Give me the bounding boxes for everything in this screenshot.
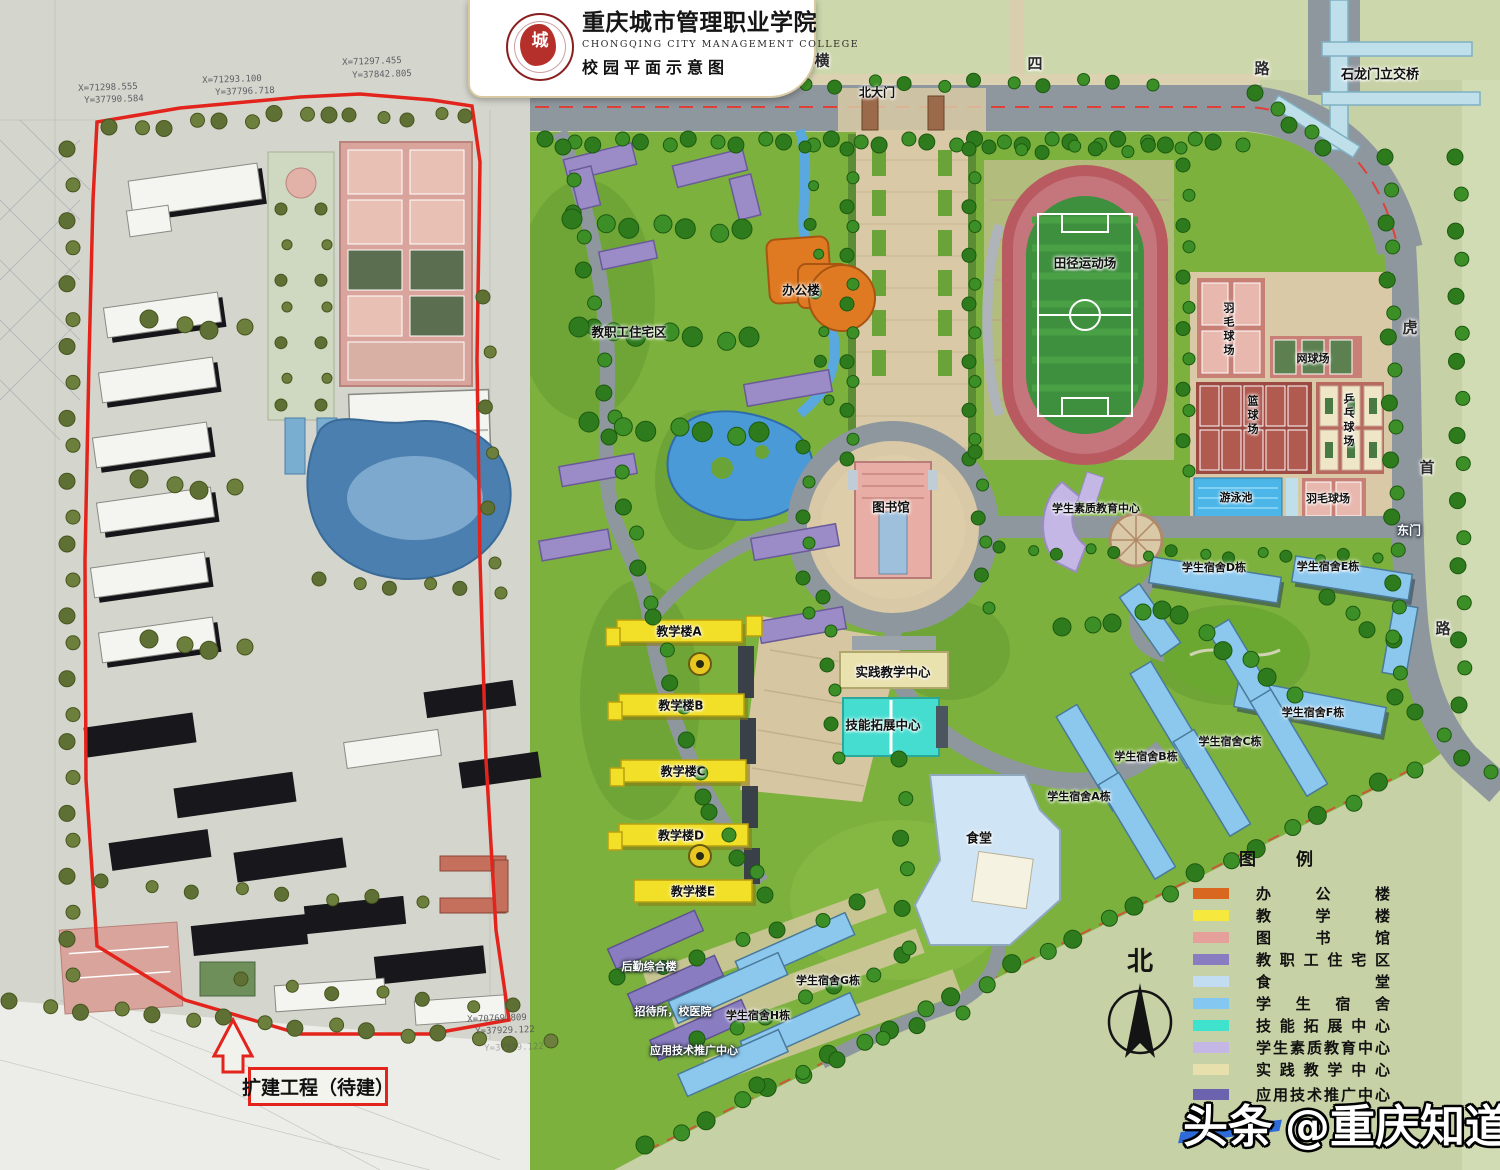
road-hengsi-char1: 横 (814, 50, 829, 71)
coord-3x: X=71297.455 (342, 56, 402, 68)
dorm-f-label: 学生宿舍F栋 (1282, 704, 1345, 720)
logistics-label: 后勤综合楼 (622, 958, 677, 974)
legend-swatch (1193, 998, 1229, 1009)
seal-character: 城 (508, 26, 572, 51)
legend-swatch (1193, 1020, 1229, 1031)
legend-swatch (1193, 976, 1229, 987)
watermark: 头条 @重庆知道 (1183, 1090, 1500, 1155)
coord-2y: Y=37796.718 (215, 86, 275, 98)
quality-center-label: 学生素质教育中心 (1052, 500, 1140, 516)
coord-1y: Y=37790.584 (84, 94, 144, 106)
basketball-label: 篮球场 (1244, 395, 1260, 437)
dorm-e-label: 学生宿舍E栋 (1297, 558, 1360, 574)
compass: 北 (1102, 941, 1178, 978)
dorm-g-label: 学生宿舍G栋 (796, 972, 860, 988)
dorm-b-label: 学生宿舍B栋 (1114, 748, 1177, 764)
road-east-char1: 虎 (1402, 317, 1417, 338)
blueprint-courts (340, 142, 472, 386)
dining-label: 食堂 (966, 828, 992, 847)
teach-b-label: 教学楼B (658, 697, 703, 714)
coord-2x: X=71293.100 (202, 74, 262, 86)
road-east-char2: 首 (1419, 457, 1434, 478)
legend-swatch (1193, 1064, 1229, 1075)
title-card: 城 重庆城市管理职业学院 CHONGQING CITY MANAGEMENT C… (468, 0, 816, 98)
badminton-bottom-label: 羽毛球场 (1306, 490, 1350, 506)
college-name-cn: 重庆城市管理职业学院 (582, 10, 808, 36)
library-label: 图书馆 (872, 497, 910, 516)
bridge-label: 石龙门立交桥 (1341, 64, 1419, 83)
legend-item: 办公楼 (1193, 882, 1390, 904)
dorm-c-label: 学生宿舍C栋 (1198, 733, 1261, 749)
dorm-h-label: 学生宿舍H栋 (726, 1007, 790, 1023)
legend-item: 教职工住宅区 (1193, 948, 1390, 970)
pingpong-label: 乒乓球场 (1340, 393, 1356, 449)
guesthouse-label: 招待所，校医院 (635, 1003, 712, 1019)
dorm-d-label: 学生宿舍D栋 (1182, 559, 1246, 575)
legend-swatch (1193, 932, 1229, 943)
map-subtitle: 校园平面示意图 (582, 54, 808, 78)
teach-e-label: 教学楼E (671, 883, 715, 900)
east-gate-label: 东门 (1397, 522, 1421, 539)
legend-title: 图 例 (1239, 845, 1390, 870)
legend-item: 技能拓展中心 (1193, 1014, 1390, 1036)
extension-annotation: 扩建工程（待建） (248, 1067, 388, 1106)
road-hengsi-char2: 四 (1027, 53, 1042, 74)
compass-north-label: 北 (1102, 941, 1178, 978)
road-hengsi-char3: 路 (1254, 58, 1269, 79)
skill-center-label: 技能拓展中心 (845, 715, 920, 734)
stadium-label: 田径运动场 (1054, 253, 1117, 272)
watermark-brand: 头条 (1183, 1100, 1273, 1153)
campus-plan-screenshot: 城 重庆城市管理职业学院 CHONGQING CITY MANAGEMENT C… (0, 0, 1500, 1170)
badminton-top-label: 羽毛球场 (1220, 302, 1236, 358)
legend-item: 实践教学中心 (1193, 1058, 1390, 1080)
legend-item: 学生素质教育中心 (1193, 1036, 1390, 1058)
coord-4y: Y=37929.122 (475, 1025, 535, 1037)
tech-center-label: 应用技术推广中心 (650, 1042, 738, 1058)
admin-label: 办公楼 (782, 280, 820, 299)
legend-item: 食堂 (1193, 970, 1390, 992)
tennis-label: 网球场 (1297, 350, 1330, 366)
legend: 图 例 办公楼 教学楼 图书馆 教职工住宅区 食堂 学生宿舍 技能拓展中心 学生… (1193, 845, 1390, 1105)
pool-label: 游泳池 (1220, 489, 1253, 505)
legend-item: 学生宿舍 (1193, 992, 1390, 1014)
legend-swatch (1193, 1042, 1229, 1053)
teach-c-label: 教学楼C (661, 763, 706, 780)
dorm-a-label: 学生宿舍A栋 (1047, 788, 1111, 804)
coord-1x: X=71298.555 (78, 82, 138, 94)
teach-d-label: 教学楼D (658, 827, 704, 844)
teach-a-label: 教学楼A (656, 623, 701, 640)
legend-swatch (1193, 910, 1229, 921)
legend-item: 图书馆 (1193, 926, 1390, 948)
legend-swatch (1193, 888, 1229, 899)
coord-4x: X=70769.809 (467, 1013, 527, 1025)
college-seal-icon: 城 (506, 13, 574, 81)
athletics-stadium (987, 165, 1168, 465)
road-east-char3: 路 (1435, 618, 1450, 639)
watermark-handle: @重庆知道 (1285, 1090, 1500, 1155)
coord-3y: Y=37842.805 (352, 69, 412, 81)
faculty-housing-label: 教职工住宅区 (591, 322, 666, 341)
college-name-en: CHONGQING CITY MANAGEMENT COLLEGE (582, 39, 808, 50)
practice-center-label: 实践教学中心 (855, 662, 930, 681)
legend-item: 教学楼 (1193, 904, 1390, 926)
legend-swatch (1193, 954, 1229, 965)
coord-5y: Y=37929.122 (484, 1042, 544, 1054)
north-gate-label: 北大门 (859, 84, 895, 101)
